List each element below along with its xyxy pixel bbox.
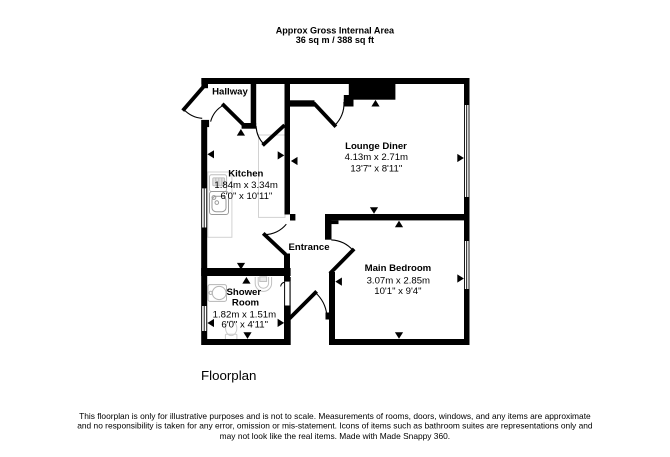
svg-text:Entrance: Entrance bbox=[288, 242, 329, 253]
svg-text:6'0" x 4'11": 6'0" x 4'11" bbox=[221, 320, 268, 331]
svg-text:and no responsibility is taken: and no responsibility is taken for any e… bbox=[77, 421, 593, 431]
svg-text:Floorplan: Floorplan bbox=[201, 368, 256, 383]
svg-text:Hallway: Hallway bbox=[212, 86, 248, 97]
svg-text:6'0" x 10'11": 6'0" x 10'11" bbox=[220, 191, 272, 202]
svg-text:4.13m x 2.71m: 4.13m x 2.71m bbox=[345, 152, 408, 163]
svg-text:13'7" x 8'11": 13'7" x 8'11" bbox=[350, 163, 402, 174]
svg-text:Shower: Shower bbox=[226, 287, 261, 298]
svg-text:36 sq m / 388 sq ft: 36 sq m / 388 sq ft bbox=[296, 35, 374, 45]
svg-text:1.84m x 3.34m: 1.84m x 3.34m bbox=[214, 180, 277, 191]
svg-text:Main Bedroom: Main Bedroom bbox=[365, 263, 432, 274]
svg-text:may not look like the real ite: may not look like the real items. Made w… bbox=[220, 431, 450, 441]
svg-text:Lounge Diner: Lounge Diner bbox=[345, 141, 407, 152]
svg-text:Room: Room bbox=[232, 298, 259, 309]
svg-text:10'1" x 9'4": 10'1" x 9'4" bbox=[374, 286, 421, 297]
svg-text:Kitchen: Kitchen bbox=[228, 169, 263, 180]
svg-text:This floorplan is only for ill: This floorplan is only for illustrative … bbox=[79, 411, 591, 421]
svg-text:Approx Gross Internal Area: Approx Gross Internal Area bbox=[276, 26, 395, 36]
